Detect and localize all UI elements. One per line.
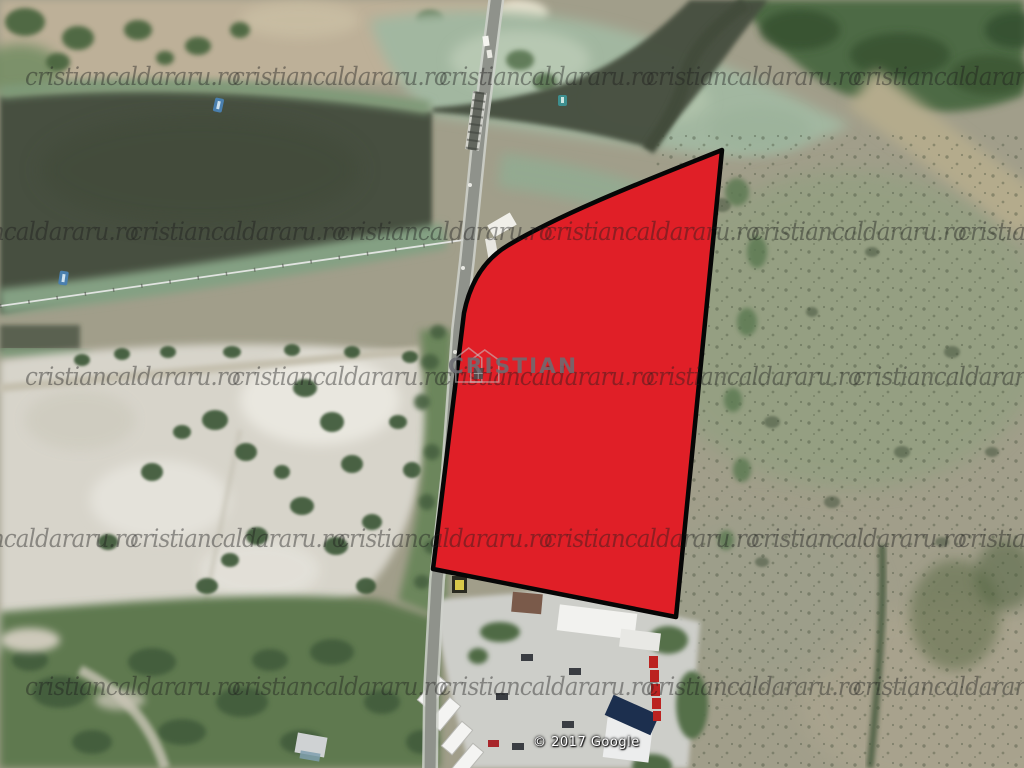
map-attribution: © 2017 Google: [533, 735, 640, 750]
listing-image: cristiancaldararu.rocristiancaldararu.ro…: [0, 0, 1024, 768]
red-car: [488, 740, 499, 747]
road-sign: [452, 576, 467, 593]
satellite-map: [0, 0, 1024, 768]
bottom-left-forest: [0, 596, 440, 768]
